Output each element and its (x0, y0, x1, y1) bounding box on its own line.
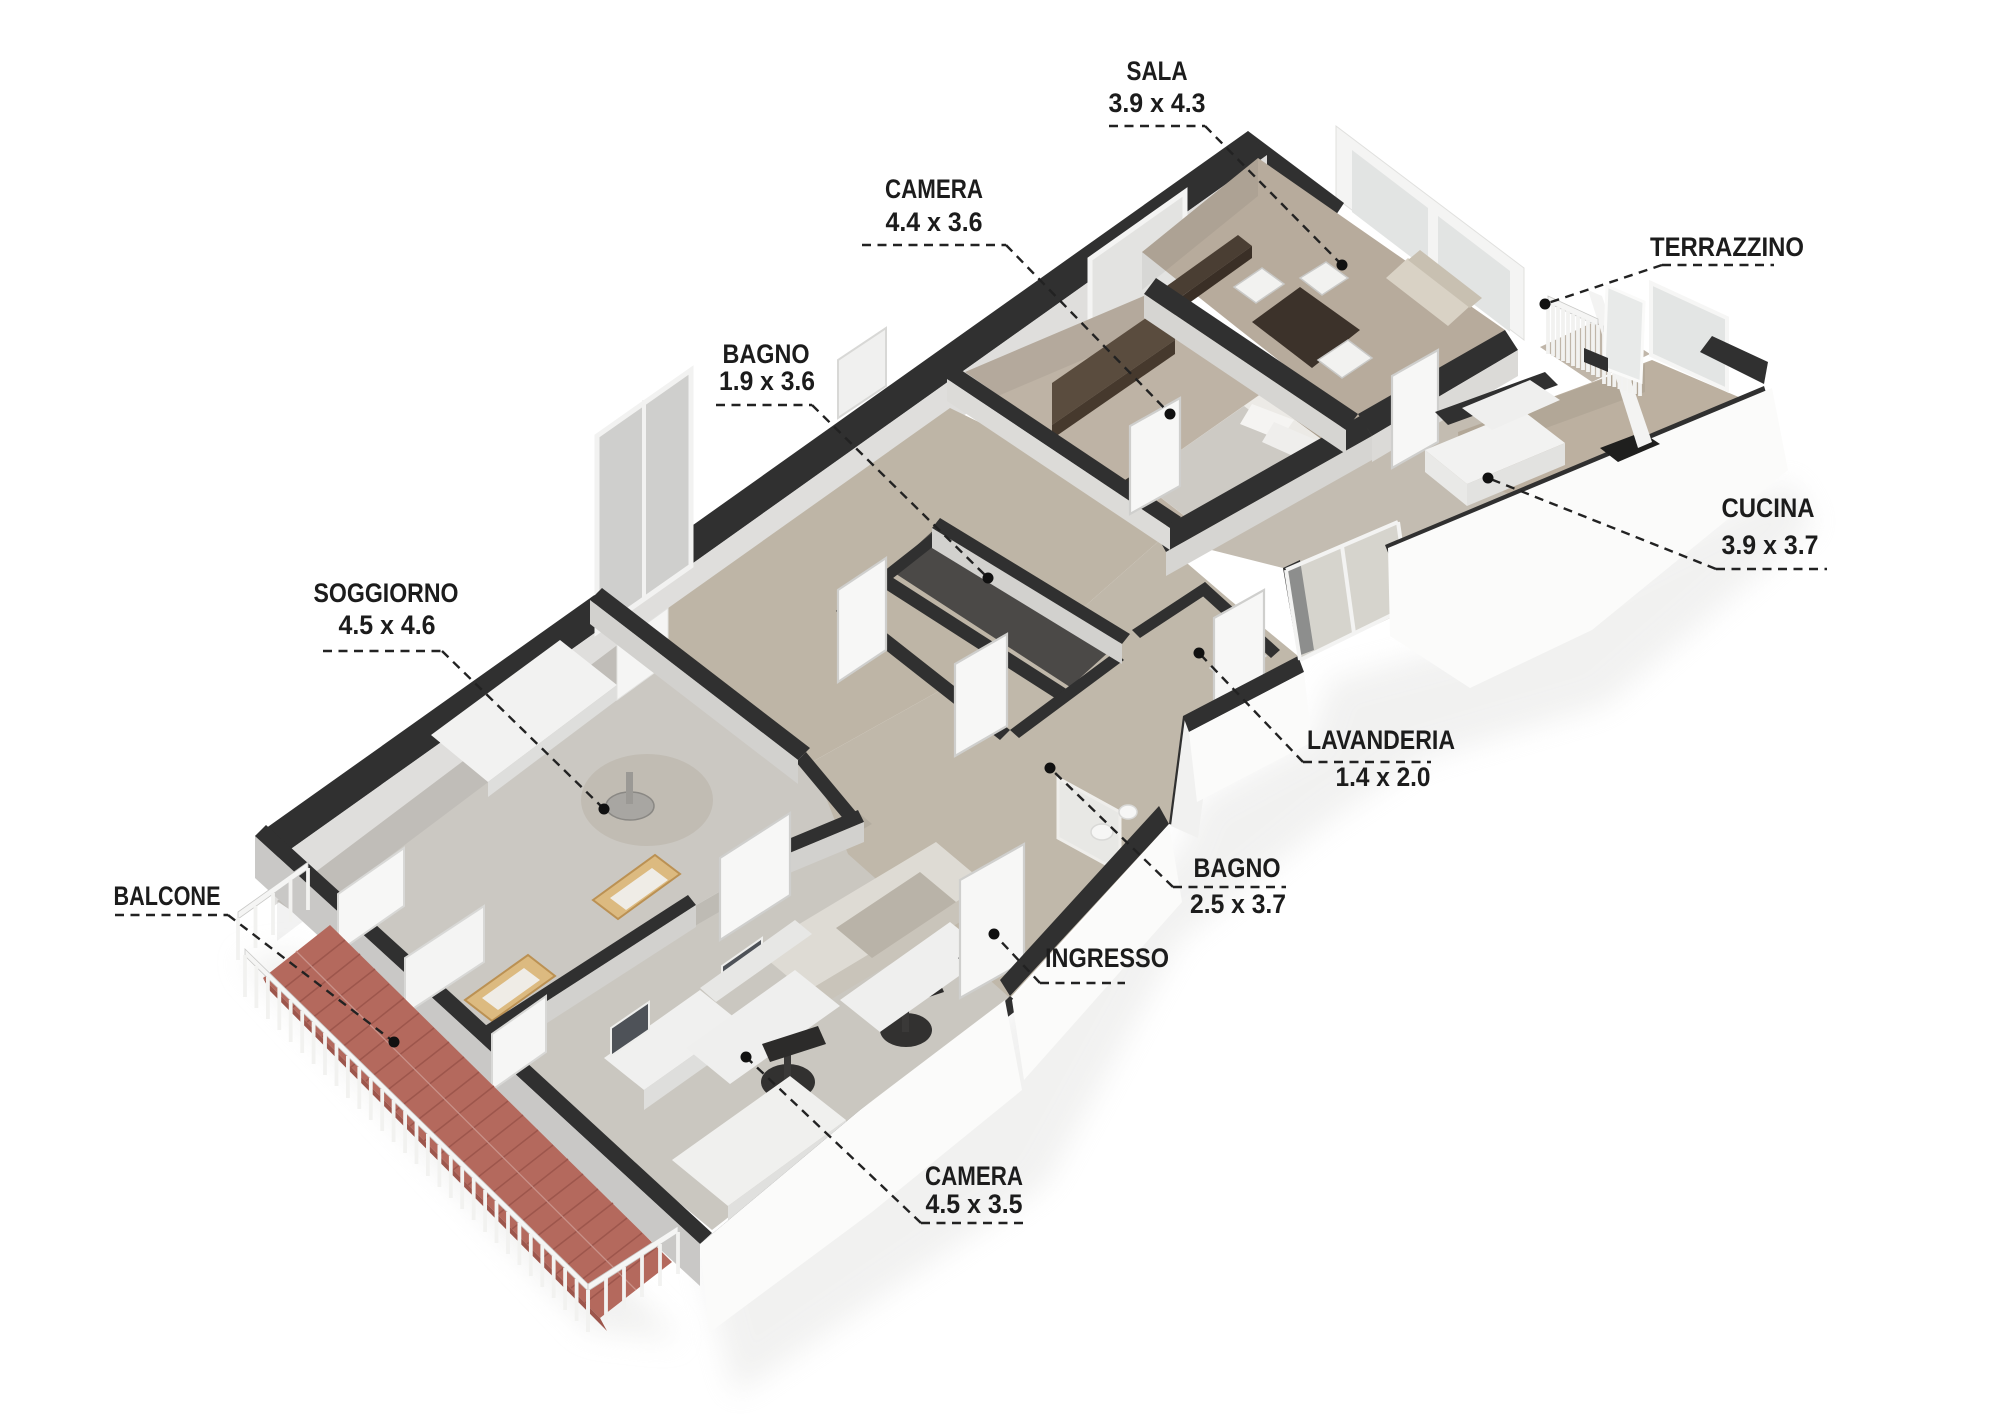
svg-text:4.5 x 4.6: 4.5 x 4.6 (339, 610, 436, 640)
svg-text:BALCONE: BALCONE (114, 881, 221, 911)
svg-text:CAMERA: CAMERA (925, 1161, 1023, 1191)
svg-text:CAMERA: CAMERA (885, 174, 983, 204)
svg-text:CUCINA: CUCINA (1722, 493, 1815, 523)
svg-text:INGRESSO: INGRESSO (1045, 943, 1169, 973)
svg-text:3.9 x 3.7: 3.9 x 3.7 (1722, 530, 1819, 560)
svg-text:LAVANDERIA: LAVANDERIA (1307, 725, 1455, 755)
svg-text:SOGGIORNO: SOGGIORNO (314, 578, 459, 608)
svg-text:BAGNO: BAGNO (723, 339, 810, 369)
svg-text:1.4 x 2.0: 1.4 x 2.0 (1336, 762, 1431, 792)
svg-text:SALA: SALA (1127, 56, 1188, 86)
svg-text:3.9 x 4.3: 3.9 x 4.3 (1109, 88, 1206, 118)
svg-text:4.5 x 3.5: 4.5 x 3.5 (926, 1189, 1023, 1219)
svg-text:1.9 x 3.6: 1.9 x 3.6 (719, 366, 815, 396)
svg-text:2.5 x 3.7: 2.5 x 3.7 (1190, 889, 1286, 919)
svg-text:4.4 x 3.6: 4.4 x 3.6 (886, 207, 983, 237)
svg-text:TERRAZZINO: TERRAZZINO (1650, 232, 1804, 262)
svg-text:BAGNO: BAGNO (1194, 853, 1281, 883)
